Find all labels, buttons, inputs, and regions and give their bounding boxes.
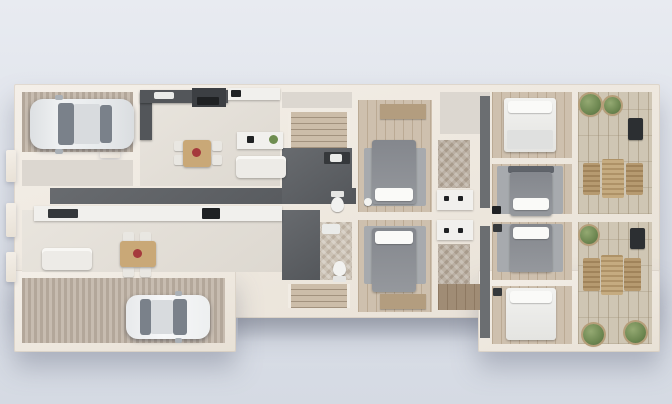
dining-b-chair-3 [123,267,134,277]
kitchen-a-island-appliance [247,136,254,143]
balcony-a-plant-2 [604,97,621,114]
wardrobe-strip-b [480,226,490,338]
vanity-b-faucet-1 [444,228,449,233]
master-a-lamp [364,198,372,206]
car-a-mirror-bottom [55,149,63,154]
kitchen-a-basin [231,90,241,97]
bath-a-basin [330,154,342,162]
wardrobe-strip-a [480,96,490,208]
master-b-pillows [375,231,413,244]
balcony-b-lounge-right [624,258,641,291]
car-a-roof [74,104,100,144]
bedroom-1-blanket [507,130,553,149]
bedroom-2-stool [492,206,501,214]
balcony-b-plant-1 [580,226,598,244]
car-b-rear-window [140,299,151,335]
kitchen-a-island-plant [269,135,278,144]
bedroom-3-pillows [513,227,549,239]
balcony-a-lounge-left [583,163,600,195]
car-a-windshield [58,103,74,145]
kitchen-b-sink [48,209,78,218]
vanity-b-counter [437,220,473,240]
dining-a-centerpiece [192,148,201,157]
kitchen-a-sink [154,92,174,99]
balcony-a-patio-chair [628,118,643,140]
balcony-a-plant-1 [580,94,601,115]
balcony-a-lounge-table [602,159,624,198]
kitchen-a-cooktop [197,97,219,105]
sofa-b [42,248,92,270]
vanity-a-counter [437,190,473,210]
master-b-wardrobe [380,294,426,309]
car-b-roof [151,300,173,334]
vanity-a-faucet-2 [458,196,463,201]
balcony-b-lounge-table [601,255,623,295]
kitchen-b-cooktop [202,208,220,219]
furniture-layer [0,0,672,404]
balcony-a-lounge-right [626,163,643,195]
bedroom-4-pillows [510,291,552,303]
balcony-b-patio-chair [630,228,645,249]
sofa-a [236,156,286,178]
bedroom-4-nightstand [493,288,502,296]
master-a-wardrobe [380,104,426,119]
balcony-b-lounge-left [583,258,600,291]
car-b-mirror-bottom [175,338,182,343]
dining-a-chair-3 [212,141,222,151]
master-a-pillows [375,188,413,201]
dining-a-chair-4 [212,155,222,165]
vanity-b-faucet-2 [458,228,463,233]
bath-b-sink [322,224,340,234]
vanity-a-faucet-1 [444,196,449,201]
toilet-b-tank [333,276,346,282]
car-a-rear-window [100,105,112,143]
toilet-a-bowl [331,197,344,212]
balcony-b-plant-2 [583,324,604,345]
balcony-b-plant-3 [625,322,646,343]
dining-b-centerpiece [133,249,142,258]
bedroom-1-pillows [508,101,552,113]
dining-b-chair-4 [140,267,151,277]
bedroom-3-nightstand [493,224,502,232]
bedroom-2-bench [513,198,549,210]
floor-plan-render [0,0,672,404]
toilet-b-bowl [333,261,346,276]
car-b-windshield [173,299,187,335]
car-b-mirror-top [175,291,182,296]
car-a-mirror-top [55,95,63,100]
